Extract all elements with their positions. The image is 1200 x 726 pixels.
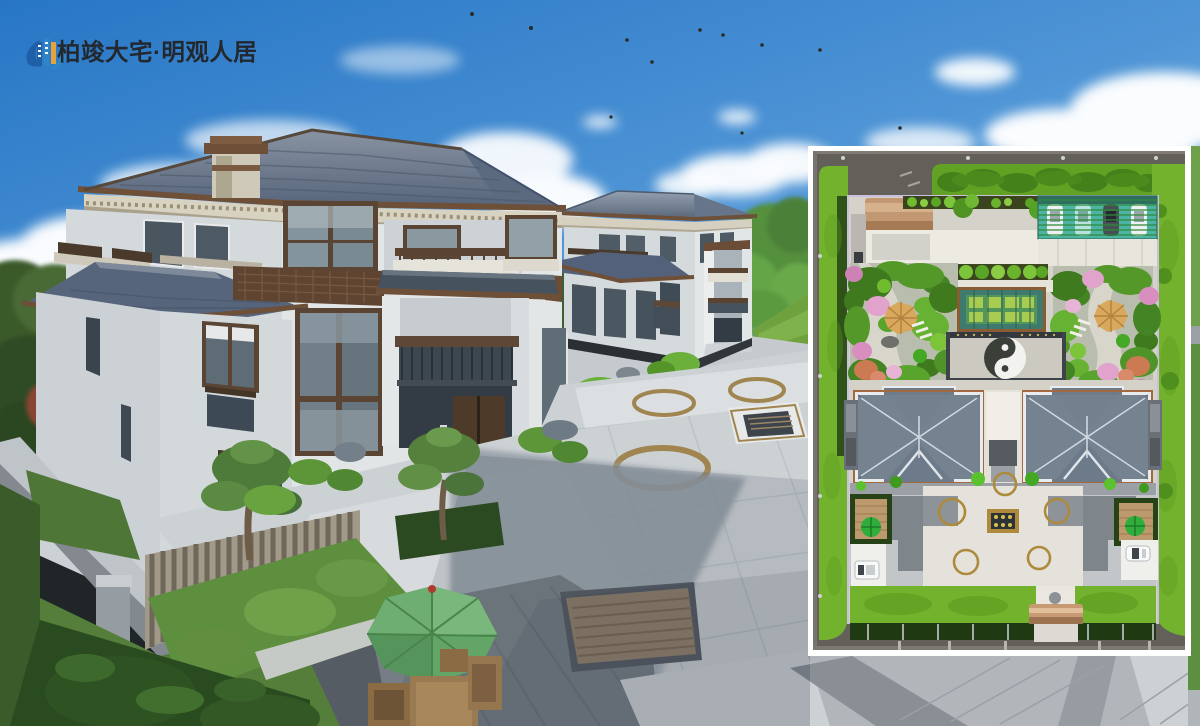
svg-text:柏竣大宅·明观人居: 柏竣大宅·明观人居 [57,38,257,65]
